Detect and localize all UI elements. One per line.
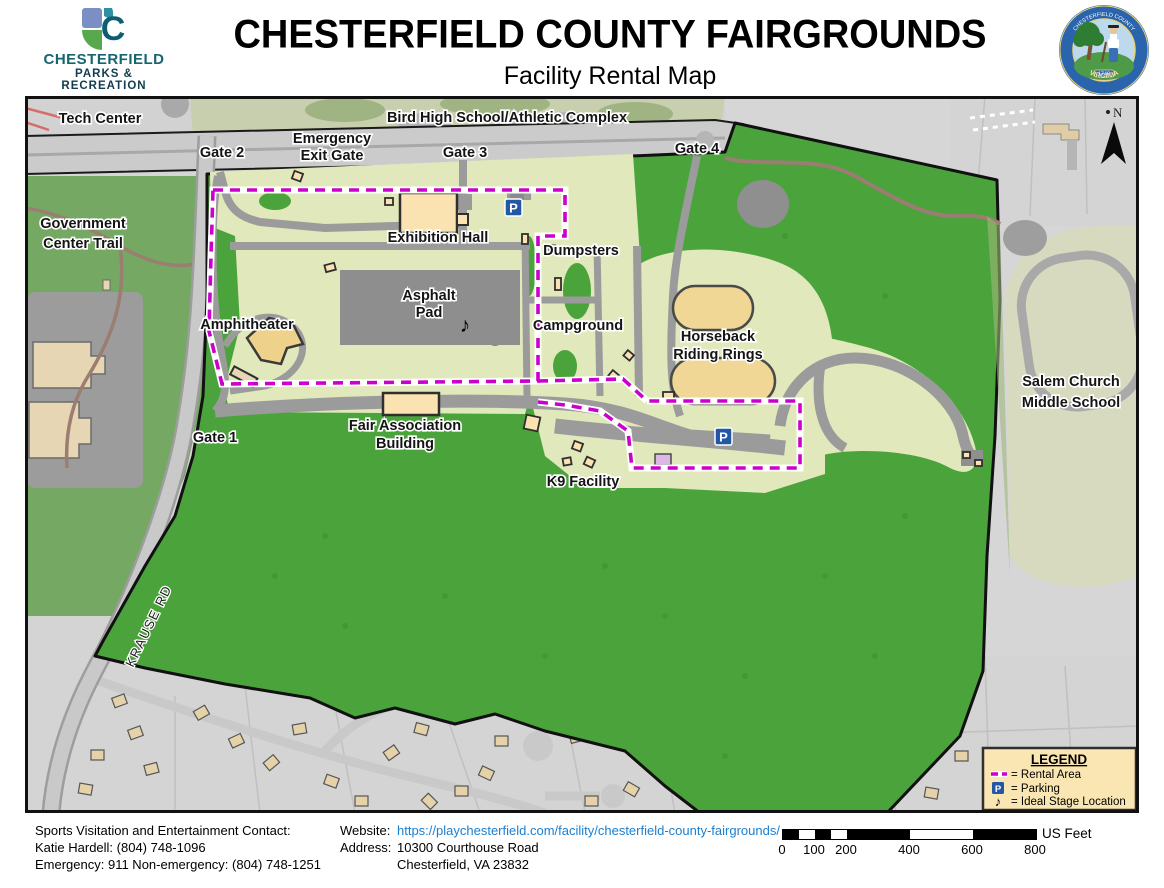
label-tech-center: Tech Center <box>59 111 142 127</box>
label-bird-high-school: Bird High School/Athletic Complex <box>387 110 627 126</box>
tick-0: 0 <box>778 842 785 857</box>
label-horseback-1: Horseback <box>681 329 756 345</box>
address-line2: Chesterfield, VA 23832 <box>397 856 529 873</box>
label-asphalt-1: Asphalt <box>402 288 455 304</box>
logo-line3: RECREATION <box>14 80 194 92</box>
county-seal: CHESTERFIELD COUNTY VIRGINIA 1749 <box>1058 4 1150 96</box>
label-gate-1: Gate 1 <box>193 430 237 446</box>
legend-parking-label: = Parking <box>1011 783 1060 795</box>
page-footer: Sports Visitation and Entertainment Cont… <box>0 813 1164 888</box>
riding-ring-1 <box>673 286 753 330</box>
logo-letter: C <box>101 10 126 48</box>
map-legend: LEGEND = Rental Area P = Parking ♪ = Ide… <box>983 748 1136 810</box>
label-gate-2: Gate 2 <box>200 145 244 161</box>
label-amphitheater: Amphitheater <box>200 317 294 333</box>
facility-map: P P ♪ N Tech Center Bird High School/Ath… <box>25 96 1139 813</box>
label-k9-facility: K9 Facility <box>547 474 620 490</box>
label-emergency-1: Emergency <box>293 131 371 147</box>
contact-line3: Emergency: 911 Non-emergency: (804) 748-… <box>35 856 321 873</box>
parks-logo-mark-icon: C <box>80 6 128 50</box>
legend-title: LEGEND <box>1031 752 1088 767</box>
label-exhibition-hall: Exhibition Hall <box>388 230 489 246</box>
label-gate-3: Gate 3 <box>443 145 487 161</box>
legend-stage-row: ♪ = Ideal Stage Location <box>995 794 1126 809</box>
svg-text:♪: ♪ <box>995 794 1002 809</box>
tick-200: 200 <box>835 842 857 857</box>
website-label: Website: <box>340 822 397 839</box>
page-subtitle: Facility Rental Map <box>180 62 1040 91</box>
parking-icon-south: P <box>715 428 732 445</box>
scale-bar <box>782 829 1037 840</box>
contact-line2: Katie Hardell: (804) 748-1096 <box>35 839 321 856</box>
legend-parking-row: P = Parking <box>992 782 1060 795</box>
tick-800: 800 <box>1024 842 1046 857</box>
tick-400: 400 <box>898 842 920 857</box>
label-government-1: Government <box>40 216 126 232</box>
legend-stage-label: = Ideal Stage Location <box>1011 796 1126 808</box>
small-purple-structure <box>655 454 671 465</box>
contact-line1: Sports Visitation and Entertainment Cont… <box>35 822 321 839</box>
label-fair-association-1: Fair Association <box>349 418 461 434</box>
riding-ring-2 <box>671 358 775 404</box>
label-horseback-2: Riding Rings <box>673 347 762 363</box>
page-header: C CHESTERFIELD PARKS & RECREATION CHESTE… <box>0 0 1164 96</box>
facility-rental-map-page: { "header": { "logo_mark_letter": "C", "… <box>0 0 1164 888</box>
scale-units: US Feet <box>1042 826 1092 841</box>
tick-100: 100 <box>803 842 825 857</box>
label-asphalt-2: Pad <box>416 305 443 321</box>
north-letter: N <box>1113 105 1123 120</box>
fair-association-building-shape <box>383 393 439 415</box>
contact-block: Sports Visitation and Entertainment Cont… <box>35 822 321 873</box>
label-government-2: Center Trail <box>43 236 123 252</box>
label-salem-1: Salem Church <box>1022 374 1120 390</box>
svg-text:P: P <box>719 430 728 445</box>
label-salem-2: Middle School <box>1022 395 1120 411</box>
stage-location-icon: ♪ <box>460 314 471 337</box>
parks-recreation-logo: C CHESTERFIELD PARKS & RECREATION <box>14 6 194 92</box>
label-fair-association-2: Building <box>376 436 434 452</box>
page-title: CHESTERFIELD COUNTY FAIRGROUNDS <box>180 13 1040 58</box>
legend-rental-label: = Rental Area <box>1011 769 1082 781</box>
seal-year: 1749 <box>1098 72 1110 78</box>
scale-tick-labels: 0 100 200 400 600 800 <box>782 842 1035 858</box>
website-link[interactable]: https://playchesterfield.com/facility/ch… <box>397 822 780 839</box>
address-label: Address: <box>340 839 397 856</box>
parking-icon-exhibition: P <box>505 199 522 216</box>
svg-text:P: P <box>509 201 518 216</box>
logo-line2: PARKS & <box>14 68 194 80</box>
label-gate-4: Gate 4 <box>675 141 719 157</box>
label-campground: Campground <box>533 318 623 334</box>
address-line1: 10300 Courthouse Road <box>397 839 539 856</box>
label-dumpsters: Dumpsters <box>543 243 619 259</box>
tick-600: 600 <box>961 842 983 857</box>
logo-line1: CHESTERFIELD <box>14 51 194 68</box>
address-block: Website: https://playchesterfield.com/fa… <box>340 822 780 873</box>
map-canvas: P P ♪ N Tech Center Bird High School/Ath… <box>25 96 1139 813</box>
label-emergency-2: Exit Gate <box>301 148 364 164</box>
